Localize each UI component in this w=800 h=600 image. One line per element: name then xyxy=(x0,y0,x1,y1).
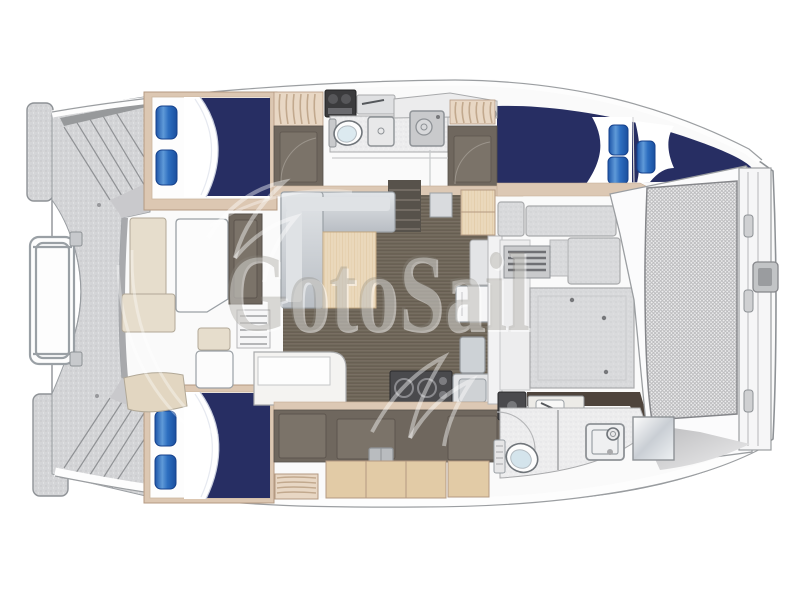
svg-text:GotoSail: GotoSail xyxy=(224,231,530,355)
